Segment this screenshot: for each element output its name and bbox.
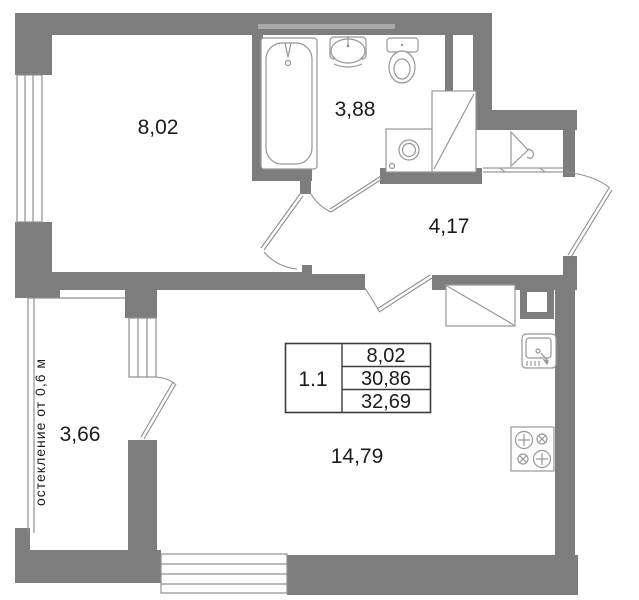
beam-line [258, 24, 395, 29]
vent-shaft [520, 285, 554, 319]
window-balcony-living [129, 318, 156, 377]
table-room-area: 8,02 [367, 345, 406, 367]
room-label-top: 8,02 [138, 116, 179, 139]
wall [15, 13, 492, 35]
wall [15, 278, 60, 298]
wash-basin-icon [330, 36, 366, 67]
wall [125, 287, 157, 318]
table-total-area: 32,69 [361, 391, 411, 413]
wall [302, 265, 312, 277]
floor-plan-canvas: 8,02 3,88 4,17 3,66 14,79 остекление от … [0, 0, 639, 600]
floor-plan: 8,02 3,88 4,17 3,66 14,79 остекление от … [0, 0, 639, 600]
hall-closet-icon [446, 285, 515, 326]
window-top-room [17, 75, 42, 222]
wall [312, 274, 365, 290]
room-label-balcony: 3,66 [60, 423, 101, 446]
table-unit-number: 1.1 [298, 368, 327, 391]
balcony-glazing-note: остекление от 0,6 м [32, 358, 48, 506]
table-living-area: 30,86 [361, 368, 411, 390]
door-bathroom [311, 176, 382, 212]
stove-icon [511, 427, 554, 471]
door-balcony [141, 377, 176, 439]
door-entrance [565, 172, 612, 257]
room-label-bathroom: 3,88 [335, 98, 376, 121]
wall [555, 287, 575, 557]
wall [482, 110, 577, 130]
door-living [365, 275, 432, 312]
wall [563, 130, 575, 177]
kitchen-sink-icon [522, 334, 556, 368]
bathtub-icon [261, 38, 317, 169]
window-living-bottom [161, 554, 287, 593]
wall [15, 550, 161, 583]
room-label-hallway: 4,17 [429, 215, 470, 238]
wall [15, 13, 52, 75]
hanger-closet [483, 132, 563, 172]
info-table: 1.1 8,02 30,86 32,69 [286, 344, 431, 414]
washing-machine-icon [386, 129, 433, 172]
door-top-room [261, 194, 303, 269]
wall [445, 35, 453, 92]
wall [563, 256, 577, 290]
hanger-icon [511, 132, 533, 166]
wall [128, 440, 157, 552]
wardrobe-icon [432, 91, 476, 172]
toilet-icon [387, 38, 418, 83]
room-label-living: 14,79 [331, 445, 384, 468]
wall [287, 555, 578, 595]
